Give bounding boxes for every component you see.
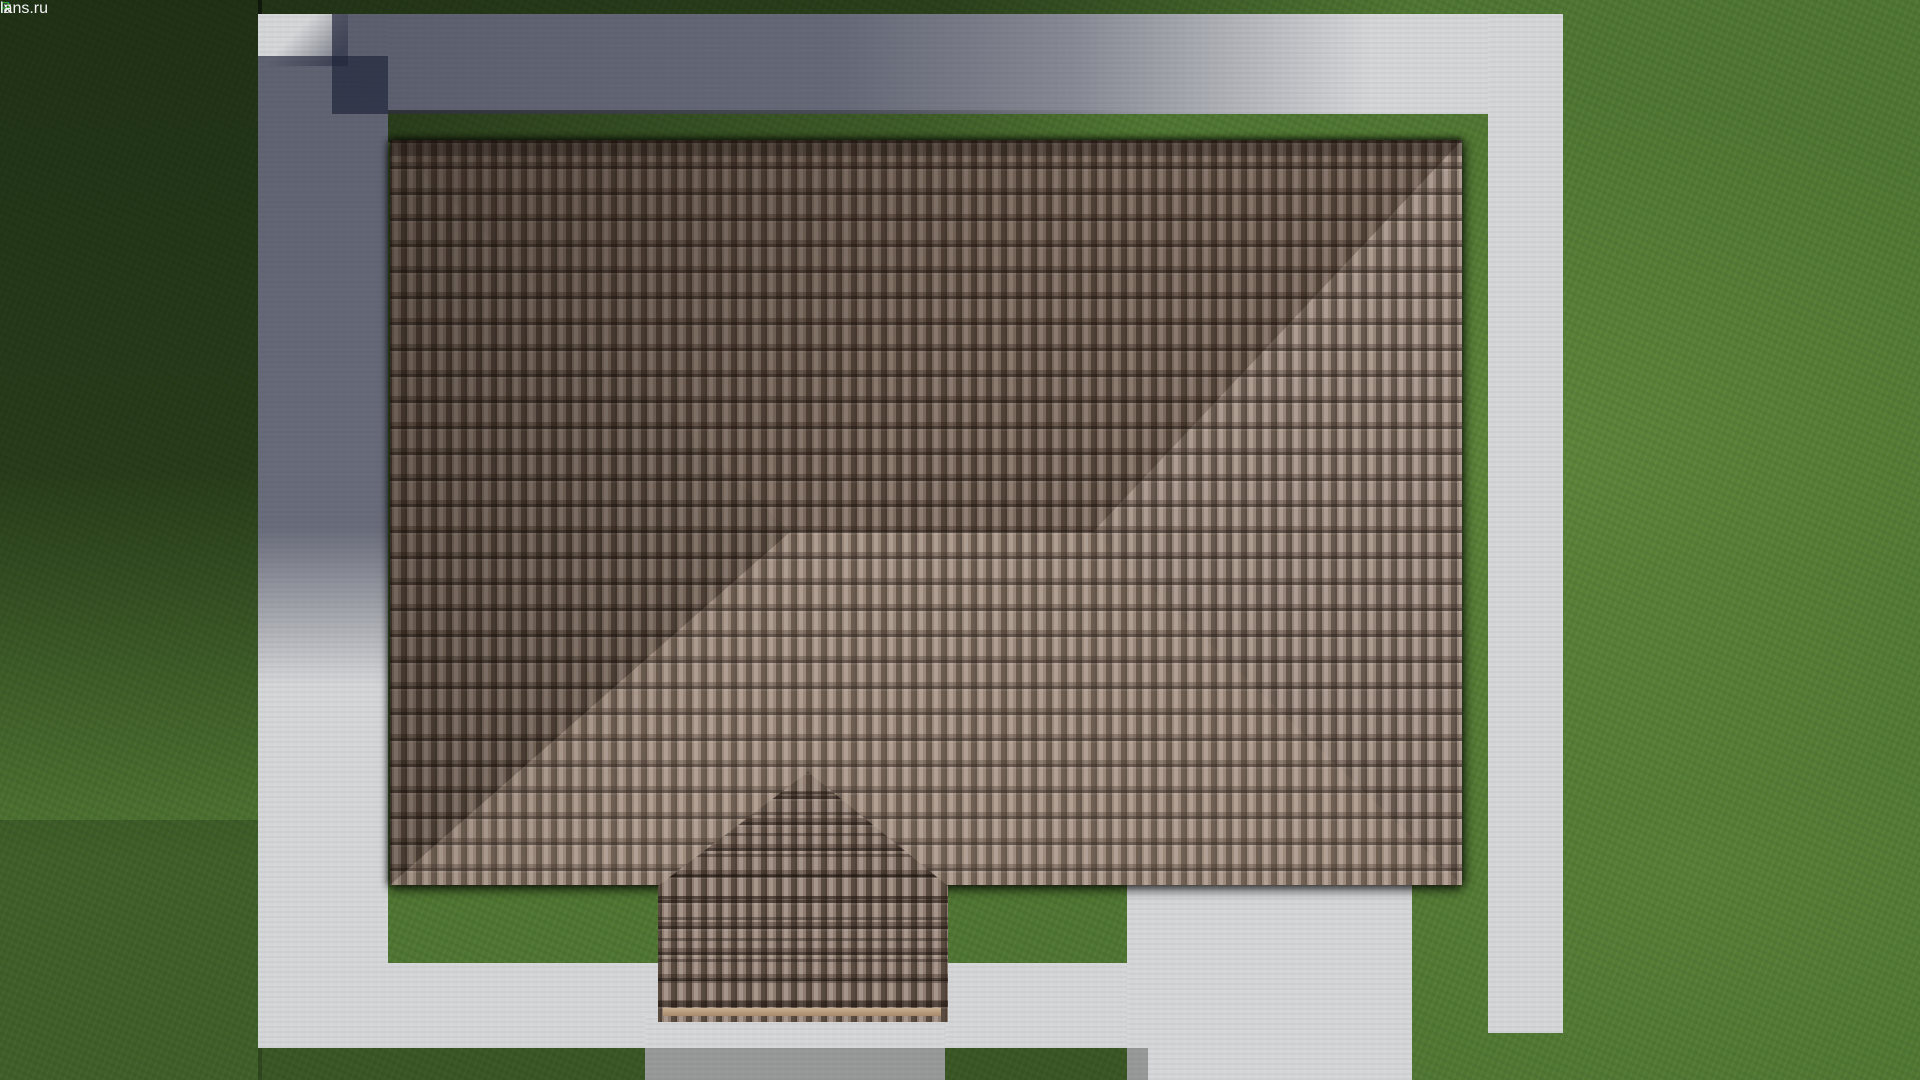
logo-letters-lans-ru: lans.ru: [0, 0, 48, 18]
walkway-right: [1488, 14, 1563, 1033]
lawn-shade-bottom-left: [0, 820, 262, 1080]
aerial-house-render: FixPlans.ru: [0, 0, 1920, 1080]
inner-grass-shadow: [388, 110, 1148, 142]
porch-fascia: [663, 1008, 941, 1016]
walkway-shadow-corner: [258, 14, 348, 66]
ruler-shadow: [282, 86, 302, 99]
house-shadow-on-lawn: [0, 0, 262, 860]
main-roof: [390, 140, 1462, 885]
bush: [1406, 884, 1442, 922]
walkway-shadow-left: [258, 56, 388, 686]
driveway: [1127, 885, 1412, 1080]
roof-shading: [390, 140, 1462, 885]
ruler-shadow: [308, 81, 328, 94]
lawn-shadow-below-walkway: [258, 1048, 1148, 1080]
walkway-shadow-top: [332, 14, 1392, 114]
bush: [624, 898, 654, 938]
roof-top-eave-shadow: [390, 140, 1462, 156]
bush: [944, 900, 972, 936]
